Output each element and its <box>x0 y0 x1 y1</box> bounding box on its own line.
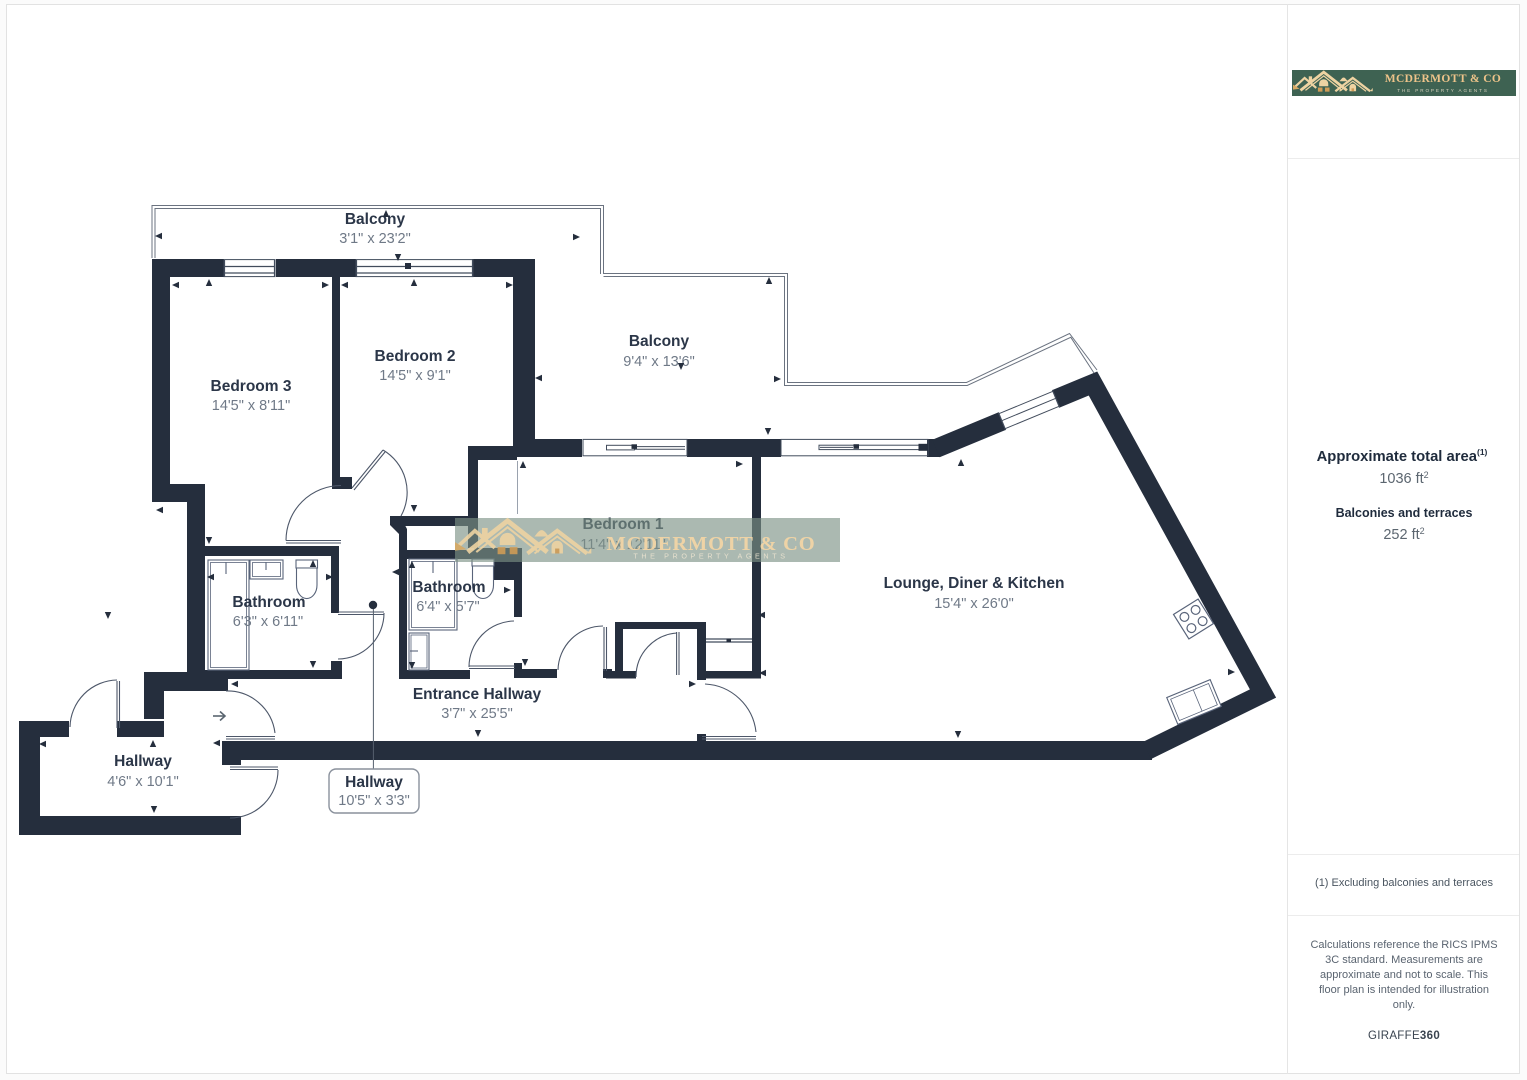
svg-text:9'4" x 13'6": 9'4" x 13'6" <box>623 354 694 370</box>
svg-text:MCDERMOTT & CO: MCDERMOTT & CO <box>1385 73 1502 85</box>
svg-text:3C standard. Measurements are: 3C standard. Measurements are <box>1325 954 1483 966</box>
svg-text:Calculations reference the RIC: Calculations reference the RICS IPMS <box>1310 939 1497 951</box>
svg-text:THE PROPERTY AGENTS: THE PROPERTY AGENTS <box>633 552 788 561</box>
svg-text:6'3" x 6'11": 6'3" x 6'11" <box>233 614 303 630</box>
svg-text:14'5" x 8'11": 14'5" x 8'11" <box>212 398 290 414</box>
svg-text:10'5" x 3'3": 10'5" x 3'3" <box>338 793 409 809</box>
svg-text:4'6" x 10'1": 4'6" x 10'1" <box>107 774 178 790</box>
svg-text:Balconies and terraces: Balconies and terraces <box>1336 506 1473 520</box>
svg-text:3'1" x 23'2": 3'1" x 23'2" <box>339 231 410 247</box>
svg-text:1036 ft2: 1036 ft2 <box>1379 470 1428 487</box>
svg-text:(1) Excluding balconies and te: (1) Excluding balconies and terraces <box>1315 877 1493 889</box>
svg-text:approximate and not to scale.: approximate and not to scale. This <box>1320 969 1488 981</box>
svg-text:Bathroom: Bathroom <box>232 594 305 611</box>
svg-text:GIRAFFE360: GIRAFFE360 <box>1368 1030 1440 1042</box>
svg-text:floor plan is intended for ill: floor plan is intended for illustration <box>1319 984 1489 996</box>
svg-text:15'4" x 26'0": 15'4" x 26'0" <box>934 596 1014 612</box>
svg-text:14'5" x 9'1": 14'5" x 9'1" <box>379 368 450 384</box>
svg-text:THE PROPERTY AGENTS: THE PROPERTY AGENTS <box>1397 88 1489 93</box>
svg-text:Hallway: Hallway <box>114 753 172 770</box>
svg-text:only.: only. <box>1393 999 1415 1011</box>
svg-text:Balcony: Balcony <box>345 211 406 228</box>
svg-text:Bedroom 2: Bedroom 2 <box>375 348 456 365</box>
svg-text:252 ft2: 252 ft2 <box>1383 526 1424 543</box>
svg-text:Balcony: Balcony <box>629 333 690 350</box>
svg-text:Entrance Hallway: Entrance Hallway <box>413 686 542 703</box>
svg-text:Approximate total area(1): Approximate total area(1) <box>1317 447 1488 465</box>
svg-text:Hallway: Hallway <box>345 774 403 791</box>
svg-text:3'7" x 25'5": 3'7" x 25'5" <box>441 706 512 722</box>
svg-text:Lounge, Diner & Kitchen: Lounge, Diner & Kitchen <box>884 575 1065 592</box>
svg-text:6'4" x 5'7": 6'4" x 5'7" <box>416 599 479 615</box>
svg-text:Bedroom 3: Bedroom 3 <box>211 378 292 395</box>
svg-text:Bathroom: Bathroom <box>412 579 485 596</box>
